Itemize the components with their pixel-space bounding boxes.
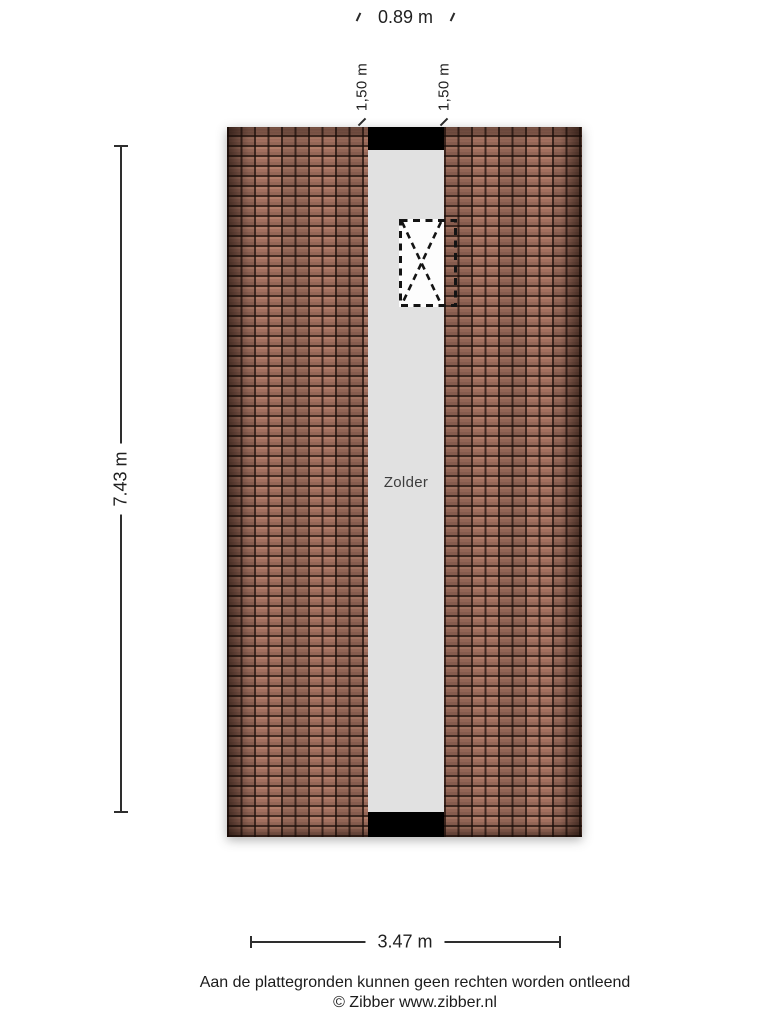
- dimension-end-cap: [559, 936, 561, 948]
- dimension-width-label: 3.47 m: [365, 932, 444, 953]
- dimension-height-label: 7.43 m: [111, 443, 132, 514]
- room-label: Zolder: [368, 474, 444, 491]
- skylight-panel: [399, 219, 444, 307]
- dimension-tick: [356, 12, 362, 21]
- dimension-corridor-width: 0.89 m: [359, 5, 452, 29]
- floorplan-page: 0.89 m 1,50 m 1,50 m 7.43 m Zolder 3.47 …: [0, 0, 768, 1024]
- dimension-tick: [440, 118, 448, 126]
- wall-bottom: [368, 812, 444, 837]
- dimension-end-cap: [250, 936, 252, 948]
- dimension-end-cap: [114, 811, 128, 813]
- dimension-dormer-right-label: 1,50 m: [436, 63, 453, 111]
- roof-left: [227, 127, 368, 837]
- dimension-corridor-width-label: 0.89 m: [378, 7, 433, 27]
- floorplan: Zolder: [227, 127, 582, 837]
- wall-top: [368, 127, 444, 150]
- footer-disclaimer: Aan de plattegronden kunnen geen rechten…: [31, 973, 768, 993]
- roof-right: [444, 127, 582, 837]
- dimension-tick: [358, 118, 366, 126]
- dimension-end-cap: [114, 145, 128, 147]
- dimension-tick: [450, 12, 456, 21]
- footer: Aan de plattegronden kunnen geen rechten…: [31, 973, 768, 1013]
- footer-copyright: © Zibber www.zibber.nl: [31, 993, 768, 1013]
- dimension-dormer-left-label: 1,50 m: [354, 63, 371, 111]
- skylight: [399, 219, 457, 307]
